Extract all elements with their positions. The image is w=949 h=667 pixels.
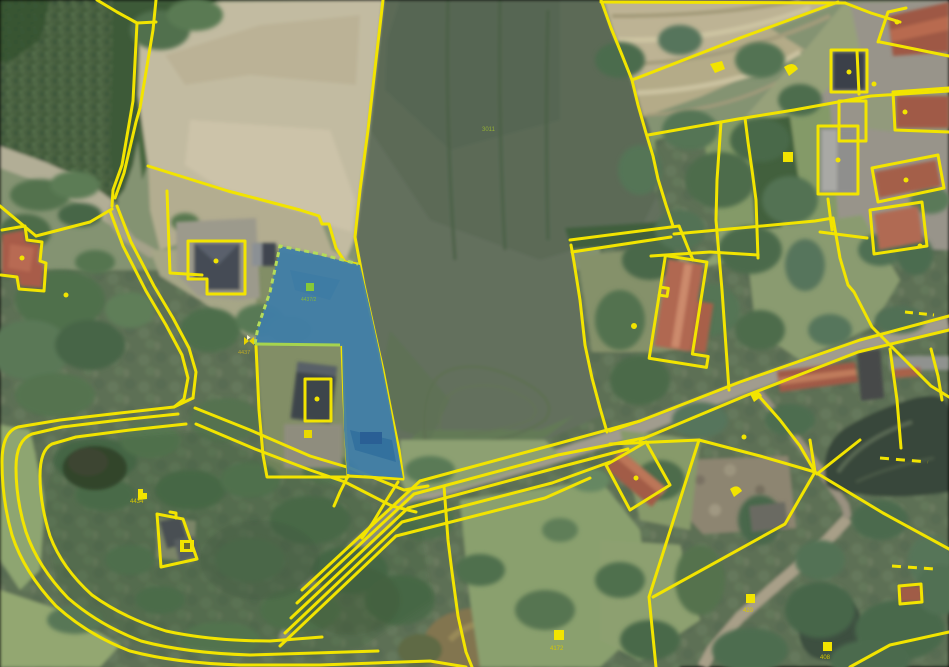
- svg-text:420: 420: [743, 608, 754, 614]
- svg-text:4437: 4437: [238, 350, 250, 356]
- svg-text:408: 408: [820, 655, 831, 661]
- svg-text:4437/2: 4437/2: [301, 297, 317, 303]
- svg-text:4172: 4172: [550, 646, 564, 652]
- svg-text:3011: 3011: [482, 127, 496, 133]
- svg-text:4434: 4434: [130, 499, 144, 505]
